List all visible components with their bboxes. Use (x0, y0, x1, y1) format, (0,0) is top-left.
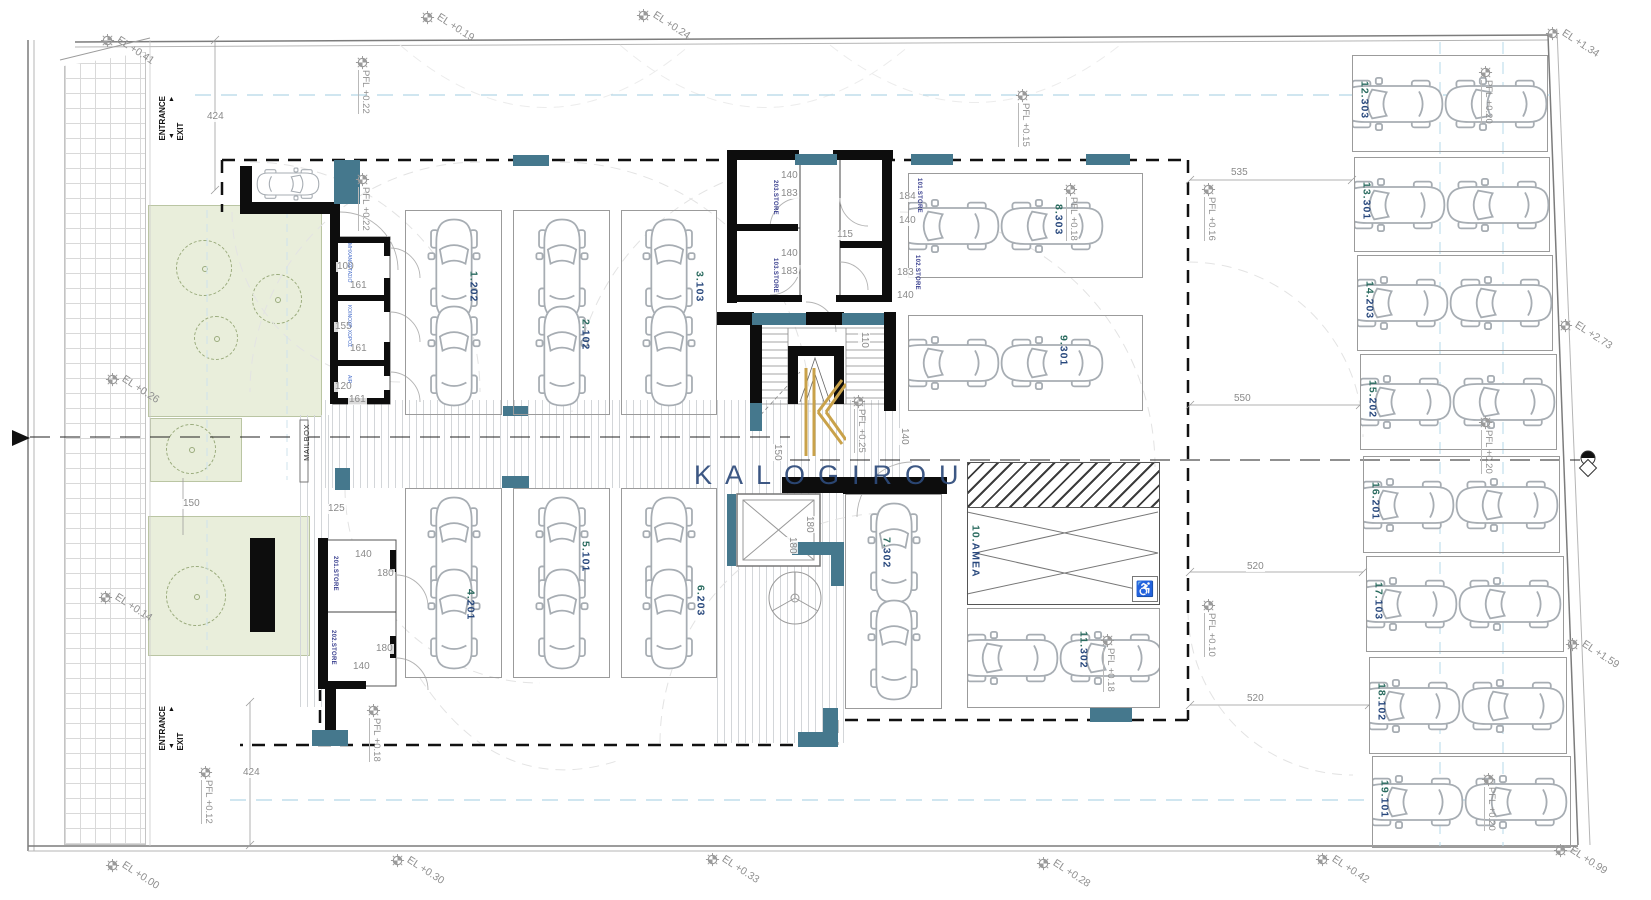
survey-marker-icon (1201, 598, 1216, 613)
car-icon (1453, 474, 1560, 536)
wall-segment (836, 295, 892, 302)
wall-segment (250, 538, 275, 632)
survey-marker-icon (1063, 182, 1078, 197)
wall-accent (312, 730, 348, 746)
entrance-label: ENTRANCE (158, 706, 167, 750)
wall-accent (1086, 154, 1130, 165)
parking-stall: 6.203 (621, 488, 717, 678)
level-label: PFL +0.18 (369, 718, 382, 762)
wall-segment (384, 240, 390, 256)
survey-marker-icon (390, 853, 405, 868)
car-icon (421, 566, 487, 672)
dimension-label: 140 (780, 249, 799, 259)
amea-hatch (968, 463, 1159, 508)
parking-stall: 17.103 (1366, 556, 1564, 652)
wall-segment (884, 312, 896, 325)
elevation-marker: EL +0.24 (636, 8, 696, 23)
parking-stall: 3.103 (621, 210, 717, 415)
dimension-label: 125 (327, 504, 346, 514)
parking-stall-label: 4.201 (465, 589, 476, 620)
wall-accent (502, 476, 529, 488)
level-label: PFL +0.20 (1481, 430, 1494, 474)
level-marker: PFL +0.20 (1478, 65, 1496, 85)
parking-stall-label: 18.102 (1376, 683, 1387, 721)
parking-stall-label: 15.202 (1367, 380, 1378, 418)
level-label: PFL +0.15 (1018, 103, 1031, 147)
survey-marker-icon (105, 372, 120, 387)
survey-marker-icon (1478, 415, 1493, 430)
elevation-marker: EL +0.30 (390, 853, 450, 868)
wall-accent (911, 154, 953, 165)
parking-stall-label: 13.301 (1361, 182, 1372, 220)
car-icon (529, 566, 595, 672)
car-icon (1444, 174, 1550, 236)
car-icon (1447, 272, 1553, 334)
entrance-arrow-icon: ▲ (168, 706, 175, 713)
parking-stall-label: 1.202 (468, 271, 479, 302)
car-icon (998, 332, 1106, 394)
survey-marker-icon (1565, 637, 1580, 652)
dimension-label: 424 (242, 768, 261, 778)
level-label: PFL +0.16 (1204, 197, 1217, 241)
parking-stall: 12.303 (1352, 55, 1548, 152)
wall-segment (325, 688, 336, 732)
parking-stall-label: 17.103 (1373, 582, 1384, 620)
car-icon (636, 566, 702, 672)
level-marker: PFL +0.18 (366, 703, 384, 723)
dimension-label: 150 (771, 444, 783, 461)
parking-stall: 1.202 (405, 210, 502, 415)
entrance-exit-label-top: ENTRANCE ▲ ▼ EXIT (158, 96, 185, 140)
survey-marker-icon (105, 858, 120, 873)
car-icon (908, 332, 1002, 394)
level-marker: PFL +0.18 (1063, 182, 1081, 202)
survey-marker-icon (355, 172, 370, 187)
parking-stall: 9.301 (908, 315, 1143, 411)
dimension-label: 120 (334, 382, 353, 392)
utility-room-label: AIR (346, 375, 351, 383)
utility-room-label: ΚΟΙΝΟΧΡ. ΧΩΡΟΣ (346, 305, 351, 347)
wall-segment (384, 278, 390, 312)
parking-stall-label: 14.203 (1364, 281, 1375, 319)
dimension-label: 140 (354, 550, 373, 560)
floor-plan: 10.AMEA ♿ 1.202 2.102 3.103 4.201 (0, 0, 1651, 900)
car-icon (421, 303, 487, 409)
elevation-marker: EL +2.73 (1558, 318, 1618, 333)
parking-stall: 5.101 (513, 488, 610, 678)
exit-label: EXIT (176, 706, 185, 750)
dimension-label: 183 (780, 267, 799, 277)
survey-marker-icon (1315, 852, 1330, 867)
parking-stall-label: 11.302 (1078, 631, 1089, 669)
wheelchair-icon: ♿ (1132, 576, 1158, 602)
dimension-label: 180 (803, 516, 815, 533)
parking-stall-label: 3.103 (694, 271, 705, 302)
dimension-label: 140 (898, 428, 910, 445)
parking-stall: 16.201 (1363, 456, 1560, 553)
wall-segment (716, 312, 754, 325)
car-icon (861, 597, 927, 703)
level-marker: PFL +0.12 (198, 765, 216, 785)
wall-accent (823, 708, 838, 747)
car-icon (636, 303, 702, 409)
survey-marker-icon (420, 10, 435, 25)
elevation-marker: EL +0.26 (105, 372, 165, 387)
level-label: PFL +0.12 (201, 780, 214, 824)
car-icon (967, 627, 1061, 689)
level-marker: PFL +0.20 (1478, 415, 1496, 435)
parking-stall-label: 6.203 (695, 585, 706, 616)
exit-arrow-icon: ▼ (168, 133, 175, 140)
level-marker: PFL +0.16 (1201, 182, 1219, 202)
wall-accent (727, 494, 736, 566)
elevation-marker: EL +0.19 (420, 10, 480, 25)
wall-accent (752, 313, 806, 325)
car-icon (1456, 573, 1564, 635)
survey-marker-icon (1478, 65, 1493, 80)
survey-marker-icon (1558, 318, 1573, 333)
survey-marker-icon (98, 590, 113, 605)
level-label: PFL +0.20 (1481, 80, 1494, 124)
level-marker: PFL +0.20 (1481, 772, 1499, 792)
turning-circle-icon (769, 572, 821, 624)
level-label: PFL +0.22 (358, 187, 371, 231)
level-marker: PFL +0.22 (355, 172, 373, 192)
parking-stall-label: 16.201 (1370, 482, 1381, 520)
wall-segment (330, 237, 390, 243)
exit-arrow-icon: ▼ (168, 743, 175, 750)
level-label: PFL +0.18 (1103, 648, 1116, 692)
car-icon (861, 500, 927, 606)
level-label: PFL +0.18 (1066, 197, 1079, 241)
level-label: PFL +0.25 (854, 409, 867, 453)
parking-stall: 11.302 (967, 608, 1160, 708)
parking-stall: 14.203 (1357, 255, 1553, 351)
dimension-label: 180 (786, 537, 798, 554)
dimension-label: 115 (836, 230, 854, 240)
survey-marker-icon (636, 8, 651, 23)
dimension-label: 110 (858, 332, 870, 348)
wall-accent (335, 468, 350, 490)
utility-room-label: ΜΗΧΑΝΟΣΤΑΣΙΟ (346, 243, 351, 282)
parking-stall: 8.303 (908, 173, 1143, 278)
wall-segment (330, 295, 388, 301)
wall-segment (330, 360, 388, 366)
parking-stall-label: 10.AMEA (970, 525, 981, 578)
wall-accent (750, 403, 762, 431)
wall-accent (795, 154, 837, 165)
entrance-arrow-icon: ▲ (168, 96, 175, 103)
dimension-label: 161 (349, 281, 368, 291)
elevation-marker: EL +0.14 (98, 590, 158, 605)
kalogirou-logo-icon (798, 366, 846, 458)
parking-stall-label: 9.301 (1058, 335, 1069, 366)
parking-stall: 19.101 (1372, 756, 1571, 848)
survey-marker-icon (705, 852, 720, 867)
survey-marker-icon (1100, 633, 1115, 648)
survey-marker-icon (198, 765, 213, 780)
elevation-marker: EL +0.00 (105, 858, 165, 873)
parking-stall-label: 12.303 (1359, 81, 1370, 119)
car-icon (1462, 771, 1570, 833)
parking-stall: 4.201 (405, 488, 502, 678)
level-label: PFL +0.10 (1204, 613, 1217, 657)
dimension-label: 184 (898, 192, 917, 202)
survey-marker-icon (1201, 182, 1216, 197)
elevation-marker: EL +1.34 (1545, 26, 1605, 41)
store-room-label: 202.STORE (330, 630, 336, 665)
level-marker: PFL +0.25 (851, 394, 869, 414)
accessible-parking-stall: 10.AMEA ♿ (967, 462, 1160, 605)
parking-stall: 13.301 (1354, 157, 1550, 252)
car-icon (1450, 371, 1557, 433)
survey-marker-icon (851, 394, 866, 409)
store-room-label: 101.STORE (916, 178, 922, 213)
parking-stall-label: 2.102 (580, 319, 591, 350)
dimension-label: 150 (182, 499, 201, 509)
level-marker: PFL +0.10 (1201, 598, 1219, 618)
parking-stall: 18.102 (1369, 657, 1567, 754)
dimension-label: 140 (896, 291, 915, 301)
dimension-label: 183 (896, 268, 915, 278)
wall-segment (318, 538, 328, 688)
dimension-label: 535 (1230, 168, 1249, 178)
level-label: PFL +0.22 (358, 70, 371, 114)
wall-accent (1090, 708, 1132, 722)
dimension-label: 183 (780, 189, 799, 199)
store-room-label: 102.STORE (914, 255, 920, 290)
wall-segment (727, 295, 802, 302)
parking-stall-label: 19.101 (1379, 780, 1390, 818)
survey-marker-icon (1036, 856, 1051, 871)
survey-marker-icon (355, 55, 370, 70)
wall-segment (735, 224, 798, 231)
mailbox-label: MAILBOX (302, 424, 311, 461)
wall-accent (513, 155, 549, 166)
elevation-marker: EL +0.42 (1315, 852, 1375, 867)
store-room-label: 201.STORE (332, 556, 338, 591)
elevation-marker: EL +0.33 (705, 852, 765, 867)
parking-stall-label: 7.302 (881, 537, 892, 568)
parking-stall: 2.102 (513, 210, 610, 415)
wall-segment (330, 204, 340, 240)
dimension-label: 161 (348, 395, 367, 405)
elevation-marker: EL +0.99 (1553, 843, 1613, 858)
wall-accent (842, 313, 884, 325)
elevation-marker: EL +0.28 (1036, 856, 1096, 871)
car-icon (908, 195, 1002, 257)
entrance-label: ENTRANCE (158, 96, 167, 140)
survey-marker-icon (100, 33, 115, 48)
level-label: PFL +0.20 (1484, 787, 1497, 831)
elevation-marker: EL +1.59 (1565, 637, 1625, 652)
parking-stall: 7.302 (845, 494, 942, 709)
dimension-label: 140 (352, 662, 371, 672)
wall-segment (384, 390, 390, 404)
survey-marker-icon (1481, 772, 1496, 787)
car-icon (255, 163, 321, 205)
survey-marker-icon (1545, 26, 1560, 41)
level-marker: PFL +0.15 (1015, 88, 1033, 108)
dimension-label: 424 (206, 112, 225, 122)
wall-accent (831, 542, 844, 586)
kalogirou-logo-text: KALOGIROU (694, 460, 972, 491)
entrance-exit-label-bottom: ENTRANCE ▲ ▼ EXIT (158, 706, 185, 750)
dimension-label: 180 (375, 644, 394, 654)
parking-stall-label: 5.101 (580, 541, 591, 572)
survey-marker-icon (366, 703, 381, 718)
level-marker: PFL +0.22 (355, 55, 373, 75)
dimension-label: 520 (1246, 694, 1265, 704)
store-room-label: 103.STORE (772, 258, 778, 293)
wall-segment (750, 325, 762, 403)
dimension-label: 140 (780, 171, 799, 181)
wall-segment (840, 241, 884, 248)
section-target-icon (1580, 451, 1597, 476)
dimension-label: 520 (1246, 562, 1265, 572)
level-marker: PFL +0.18 (1100, 633, 1118, 653)
wall-segment (727, 150, 799, 160)
parking-stall-label: 8.303 (1053, 204, 1064, 235)
parking-stall: 15.202 (1360, 354, 1557, 450)
wall-segment (882, 153, 892, 300)
wall-segment (384, 342, 390, 376)
elevation-marker: EL +0.41 (100, 33, 160, 48)
survey-marker-icon (1015, 88, 1030, 103)
wall-segment (884, 325, 896, 411)
wall-segment (806, 312, 844, 325)
store-room-label: 203.STORE (772, 180, 778, 215)
dimension-label: 140 (898, 216, 917, 226)
car-icon (1459, 675, 1567, 737)
survey-marker-icon (1553, 843, 1568, 858)
exit-label: EXIT (176, 96, 185, 140)
dimension-label: 550 (1233, 394, 1252, 404)
dimension-label: 180 (376, 569, 395, 579)
